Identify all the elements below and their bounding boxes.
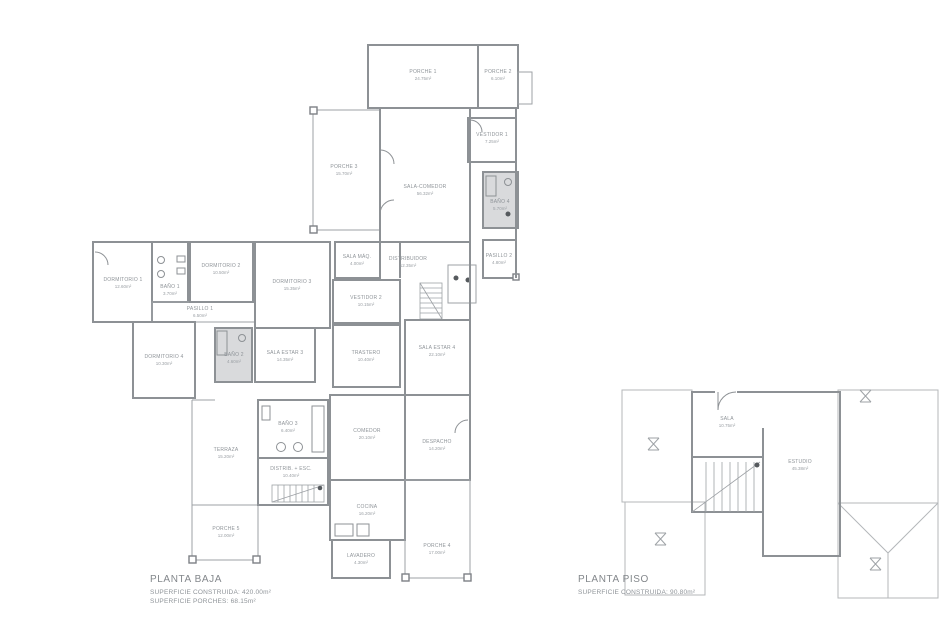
room-pasillo2: PASILLO 2 4.80m²	[483, 240, 519, 280]
svg-text:4.30m²: 4.30m²	[354, 560, 369, 565]
secondary-staircase	[272, 485, 324, 502]
svg-text:5.70m²: 5.70m²	[493, 206, 508, 211]
piso-door	[718, 392, 736, 410]
planta-piso-title: PLANTA PISO	[578, 574, 649, 585]
room-distribuidor2: DISTRIB. + ESC. 10.40m²	[258, 458, 328, 505]
room-dormitorio2: DORMITORIO 2 10.50m²	[190, 242, 253, 302]
svg-text:10.40m²: 10.40m²	[358, 357, 375, 362]
room-aseo	[448, 265, 476, 303]
svg-text:SALA: SALA	[720, 416, 734, 422]
svg-text:SALA-COMEDOR: SALA-COMEDOR	[404, 184, 447, 190]
svg-text:TRASTERO: TRASTERO	[352, 350, 381, 356]
svg-text:15.70m²: 15.70m²	[336, 171, 353, 176]
floor-plan-drawing: PORCHE 1 24.75m² PORCHE 2 6.10m² PORCHE …	[0, 0, 945, 630]
svg-text:SALA ESTAR 3: SALA ESTAR 3	[267, 350, 304, 356]
room-porche5: PORCHE 5 12.00m²	[189, 505, 260, 563]
svg-text:10.15m²: 10.15m²	[358, 302, 375, 307]
svg-text:14.20m²: 14.20m²	[429, 446, 446, 451]
svg-text:22.10m²: 22.10m²	[429, 352, 446, 357]
svg-text:PASILLO 2: PASILLO 2	[486, 253, 512, 259]
roof-vent-icons	[648, 390, 881, 570]
svg-text:12.60m²: 12.60m²	[115, 284, 132, 289]
svg-text:BAÑO 1: BAÑO 1	[160, 283, 180, 290]
svg-text:PORCHE 1: PORCHE 1	[409, 69, 436, 75]
svg-text:6.50m²: 6.50m²	[193, 313, 208, 318]
room-vestidor1: VESTIDOR 1 7.25m²	[468, 118, 516, 162]
svg-text:15.20m²: 15.20m²	[218, 454, 235, 459]
room-estar: SALA ESTAR 3 14.35m²	[255, 328, 315, 382]
room-terraza: TERRAZA 15.20m²	[192, 400, 258, 505]
main-staircase	[420, 283, 442, 319]
piso-staircase	[692, 462, 760, 512]
svg-text:12.35m²: 12.35m²	[400, 263, 417, 268]
svg-text:SALA MÁQ.: SALA MÁQ.	[343, 253, 371, 260]
svg-text:DESPACHO: DESPACHO	[422, 439, 451, 445]
svg-text:4.60m²: 4.60m²	[227, 359, 242, 364]
svg-text:DISTRIBUIDOR: DISTRIBUIDOR	[389, 256, 427, 262]
room-dormitorio4: DORMITORIO 4 10.30m²	[133, 322, 195, 398]
planta-piso-plan: SALA 10.75m² ESTUDIO 45.38m²	[622, 390, 938, 598]
room-cocina: COCINA 16.20m²	[330, 480, 405, 540]
svg-text:10.40m²: 10.40m²	[283, 473, 300, 478]
svg-text:PORCHE 5: PORCHE 5	[212, 526, 239, 532]
svg-text:10.50m²: 10.50m²	[213, 270, 230, 275]
svg-text:4.80m²: 4.80m²	[492, 260, 507, 265]
planta-baja-title-block: PLANTA BAJA SUPERFICIE CONSTRUIDA: 420.0…	[150, 574, 272, 605]
room-dormitorio1: DORMITORIO 1 12.60m²	[93, 242, 152, 322]
svg-text:BAÑO 2: BAÑO 2	[224, 351, 244, 358]
planta-baja-plan: PORCHE 1 24.75m² PORCHE 2 6.10m² PORCHE …	[93, 45, 532, 581]
room-comedor: COMEDOR 20.10m²	[330, 395, 405, 480]
svg-text:DORMITORIO 3: DORMITORIO 3	[273, 279, 312, 285]
svg-text:10.75m²: 10.75m²	[719, 423, 736, 428]
svg-text:DORMITORIO 2: DORMITORIO 2	[202, 263, 241, 269]
svg-text:DORMITORIO 4: DORMITORIO 4	[145, 354, 184, 360]
roof-outlines	[622, 390, 938, 598]
blueprint-page: PORCHE 1 24.75m² PORCHE 2 6.10m² PORCHE …	[0, 0, 945, 630]
room-trastero: TRASTERO 10.40m²	[333, 325, 400, 387]
room-porche1: PORCHE 1 24.75m²	[368, 45, 478, 108]
svg-text:PORCHE 2: PORCHE 2	[484, 69, 511, 75]
svg-text:DORMITORIO 1: DORMITORIO 1	[104, 277, 143, 283]
room-sala-estar-4: SALA ESTAR 4 22.10m²	[405, 320, 470, 395]
room-lavadero: LAVADERO 4.30m²	[332, 540, 390, 578]
svg-text:VESTIDOR 1: VESTIDOR 1	[476, 132, 508, 138]
svg-text:3.70m²: 3.70m²	[163, 291, 178, 296]
svg-text:TERRAZA: TERRAZA	[214, 447, 239, 453]
svg-text:15.35m²: 15.35m²	[284, 286, 301, 291]
room-salon: SALA-COMEDOR 56.32m²	[380, 108, 470, 242]
svg-text:ESTUDIO: ESTUDIO	[788, 459, 812, 465]
svg-text:6.40m²: 6.40m²	[281, 428, 296, 433]
room-pasillo1: PASILLO 1 6.50m²	[152, 302, 255, 322]
room-porche4: PORCHE 4 17.00m²	[402, 480, 471, 581]
svg-text:6.10m²: 6.10m²	[491, 76, 506, 81]
svg-text:12.00m²: 12.00m²	[218, 533, 235, 538]
room-bano4: BAÑO 4 5.70m²	[483, 172, 518, 228]
svg-text:24.75m²: 24.75m²	[415, 76, 432, 81]
planta-baja-area-line-1: SUPERFICIE CONSTRUIDA: 420.00m²	[150, 589, 272, 596]
planta-baja-title: PLANTA BAJA	[150, 574, 222, 585]
planta-baja-area-line-2: SUPERFICIE PORCHES: 68.15m²	[150, 598, 256, 605]
room-vestidor2: VESTIDOR 2 10.15m²	[333, 280, 400, 323]
svg-text:17.00m²: 17.00m²	[429, 550, 446, 555]
svg-text:SALA ESTAR 4: SALA ESTAR 4	[419, 345, 456, 351]
svg-text:PORCHE 4: PORCHE 4	[423, 543, 450, 549]
svg-text:20.10m²: 20.10m²	[359, 435, 376, 440]
room-porche3: PORCHE 3 15.70m²	[310, 107, 380, 233]
room-sala-piso: SALA 10.75m²	[719, 416, 736, 428]
svg-text:LAVADERO: LAVADERO	[347, 553, 375, 559]
room-sala-maquinas: SALA MÁQ. 4.00m²	[335, 242, 380, 278]
room-bano1: BAÑO 1 3.70m²	[152, 242, 188, 302]
room-dormitorio3: DORMITORIO 3 15.35m²	[255, 242, 330, 328]
svg-text:16.20m²: 16.20m²	[359, 511, 376, 516]
planta-piso-area-line-1: SUPERFICIE CONSTRUIDA: 90.80m²	[578, 589, 696, 596]
planta-piso-title-block: PLANTA PISO SUPERFICIE CONSTRUIDA: 90.80…	[578, 574, 696, 596]
svg-text:45.38m²: 45.38m²	[792, 466, 809, 471]
room-estudio: ESTUDIO 45.38m²	[788, 459, 812, 471]
svg-text:BAÑO 3: BAÑO 3	[278, 420, 298, 427]
room-bano3: BAÑO 3 6.40m²	[258, 400, 328, 458]
svg-text:10.30m²: 10.30m²	[156, 361, 173, 366]
svg-text:PORCHE 3: PORCHE 3	[330, 164, 357, 170]
svg-text:PASILLO 1: PASILLO 1	[187, 306, 213, 312]
svg-text:4.00m²: 4.00m²	[350, 261, 365, 266]
svg-text:56.32m²: 56.32m²	[417, 191, 434, 196]
svg-text:14.35m²: 14.35m²	[277, 357, 294, 362]
svg-text:COMEDOR: COMEDOR	[353, 428, 381, 434]
svg-text:BAÑO 4: BAÑO 4	[490, 198, 510, 205]
room-bano2: BAÑO 2 4.60m²	[215, 328, 252, 382]
svg-text:DISTRIB. + ESC.: DISTRIB. + ESC.	[270, 466, 311, 472]
room-porche2: PORCHE 2 6.10m²	[478, 45, 532, 108]
svg-text:VESTIDOR 2: VESTIDOR 2	[350, 295, 382, 301]
svg-text:7.25m²: 7.25m²	[485, 139, 500, 144]
room-despacho: DESPACHO 14.20m²	[405, 395, 470, 480]
svg-text:COCINA: COCINA	[357, 504, 378, 510]
